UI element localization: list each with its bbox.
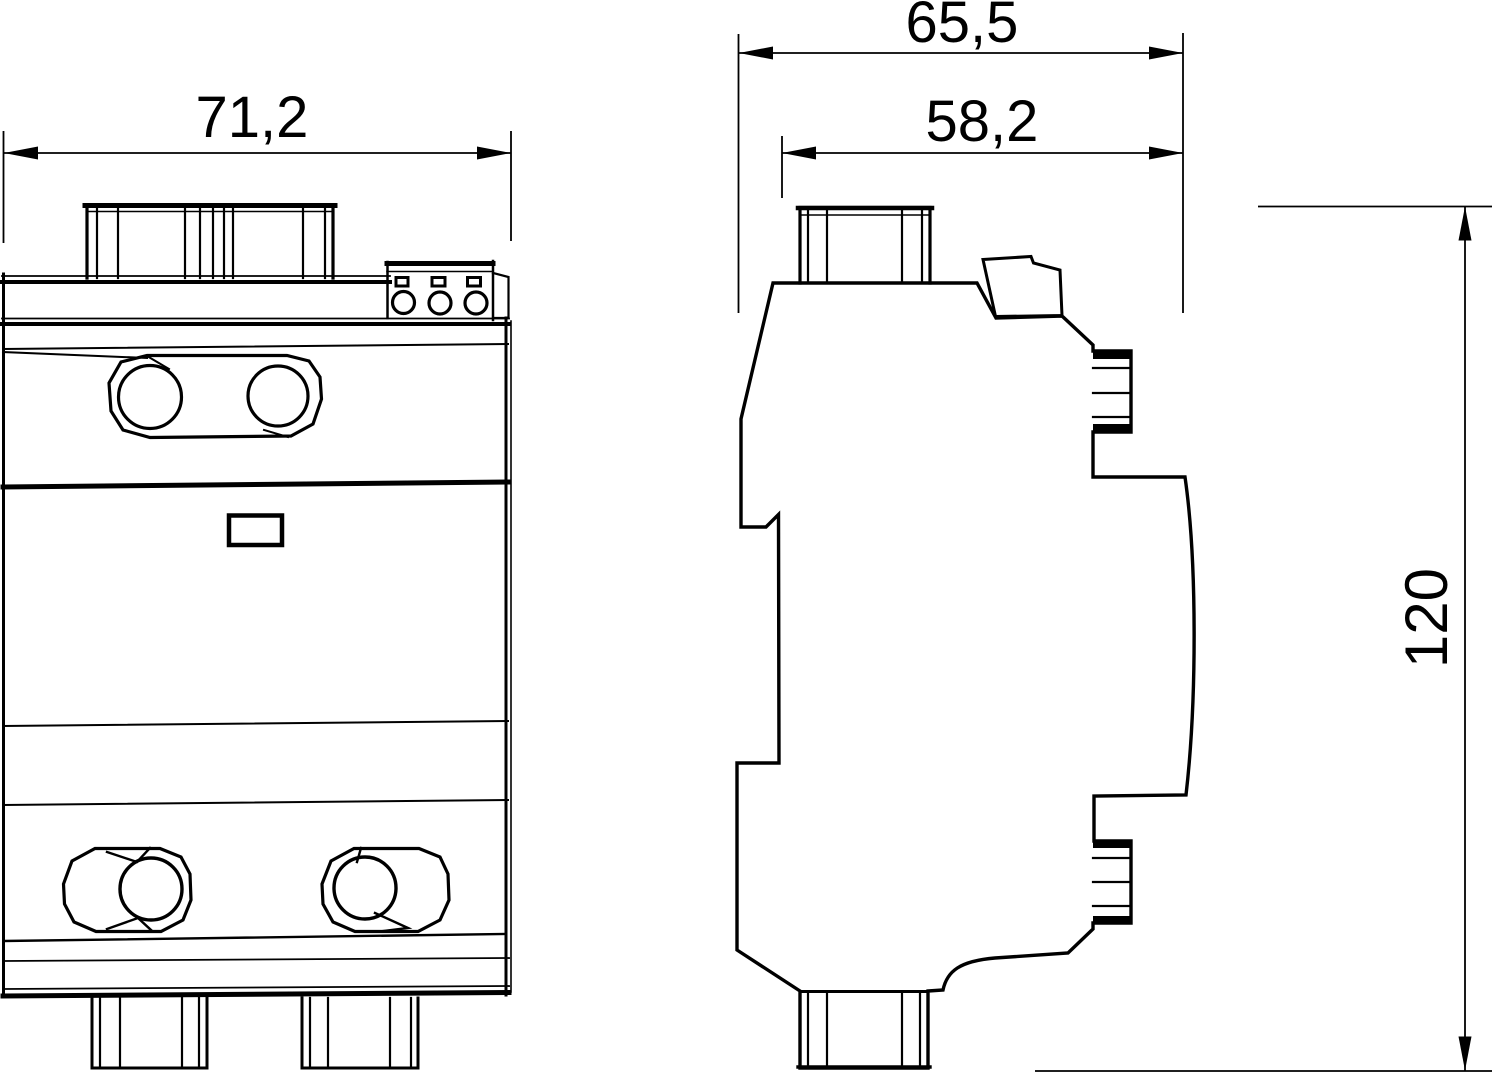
dimension-label-side-height: 120 bbox=[1393, 568, 1460, 668]
arrowhead-right bbox=[1149, 47, 1183, 60]
arrowhead-right bbox=[1149, 147, 1183, 160]
arrowhead-left bbox=[782, 147, 816, 160]
dimension-label-front-width: 71,2 bbox=[196, 85, 309, 150]
arrowhead-left bbox=[4, 147, 38, 160]
front-top-connector-block bbox=[85, 205, 335, 278]
front-foot-left-ribs bbox=[100, 998, 199, 1068]
side-body-outline bbox=[737, 283, 1194, 1068]
technical-drawing-canvas: 71,2 65,5 58,2 120 bbox=[0, 0, 1500, 1074]
side-bottom-terminal bbox=[798, 992, 930, 1068]
front-foot-right bbox=[302, 998, 418, 1068]
front-foot-right-outline bbox=[302, 998, 418, 1068]
upper-clamp-bottom-band bbox=[1093, 424, 1131, 432]
front-top-block-ribs bbox=[97, 207, 325, 278]
side-top-terminal-outline bbox=[800, 208, 930, 284]
front-bottom-edge bbox=[3, 993, 509, 997]
front-bottom-line-2 bbox=[4, 958, 509, 961]
front-cover-top-line bbox=[3, 344, 508, 349]
side-lower-clamp bbox=[1093, 841, 1131, 923]
front-foot-left-outline bbox=[92, 998, 207, 1068]
front-view bbox=[2, 205, 511, 1068]
side-upper-clamp bbox=[1093, 351, 1131, 432]
aux-terminal-flange bbox=[493, 273, 509, 318]
front-lower-left-window bbox=[64, 848, 192, 932]
side-bottom-terminal-ribs bbox=[808, 992, 920, 1067]
lower-clamp-ribs bbox=[1093, 858, 1131, 906]
lower-left-window-outline bbox=[64, 849, 192, 932]
side-top-terminal-ribs bbox=[808, 209, 922, 282]
aux-terminal-slot-3 bbox=[468, 278, 481, 287]
lower-right-window-accent-bottom bbox=[375, 913, 408, 932]
arrowhead-right bbox=[477, 147, 511, 160]
lower-right-window-screw bbox=[334, 857, 396, 919]
side-top-terminal bbox=[798, 208, 932, 284]
front-bottom-line-1 bbox=[4, 934, 506, 941]
dimension-drawing-svg: 71,2 65,5 58,2 120 bbox=[0, 0, 1500, 1074]
lower-clamp-top-band bbox=[1093, 841, 1131, 848]
front-lower-right-window bbox=[322, 848, 449, 932]
dimension-label-side-depth-upper: 58,2 bbox=[926, 89, 1039, 154]
front-aux-terminal-block bbox=[387, 261, 509, 320]
upper-clamp-top-band bbox=[1093, 351, 1131, 359]
upper-window-plug-right bbox=[248, 366, 308, 426]
front-upper-module-window bbox=[109, 356, 322, 438]
front-separator-line bbox=[3, 482, 508, 487]
front-label-window bbox=[229, 516, 282, 546]
lower-clamp-bottom-band bbox=[1093, 916, 1131, 923]
front-bottom-line-3 bbox=[4, 986, 509, 989]
front-foot-left bbox=[92, 998, 207, 1068]
front-top-block-outline bbox=[87, 205, 333, 278]
arrowhead-left bbox=[739, 47, 773, 60]
dimension-side-height: 120 bbox=[1035, 207, 1492, 1072]
lower-left-window-screw bbox=[120, 858, 182, 920]
dimension-label-side-depth-total: 65,5 bbox=[906, 0, 1019, 55]
dimension-side-depth-upper: 58,2 bbox=[782, 89, 1183, 198]
dimension-front-width: 71,2 bbox=[4, 85, 512, 243]
aux-terminal-screw-1 bbox=[393, 292, 415, 314]
aux-terminal-screw-2 bbox=[429, 292, 451, 314]
aux-terminal-screw-3 bbox=[465, 292, 487, 314]
front-cover-diagonal bbox=[3, 352, 147, 358]
upper-window-plug-left bbox=[119, 366, 182, 429]
arrowhead-bottom bbox=[1459, 1037, 1472, 1071]
side-view bbox=[737, 208, 1194, 1069]
front-mid-line-2 bbox=[3, 800, 508, 805]
side-release-tab bbox=[983, 257, 1062, 317]
aux-terminal-slot-1 bbox=[396, 278, 408, 287]
front-foot-right-ribs bbox=[310, 998, 411, 1068]
arrowhead-top bbox=[1459, 207, 1472, 241]
aux-terminal-slot-2 bbox=[432, 278, 445, 287]
upper-clamp-ribs bbox=[1093, 368, 1131, 417]
front-mid-line-1 bbox=[3, 721, 508, 726]
